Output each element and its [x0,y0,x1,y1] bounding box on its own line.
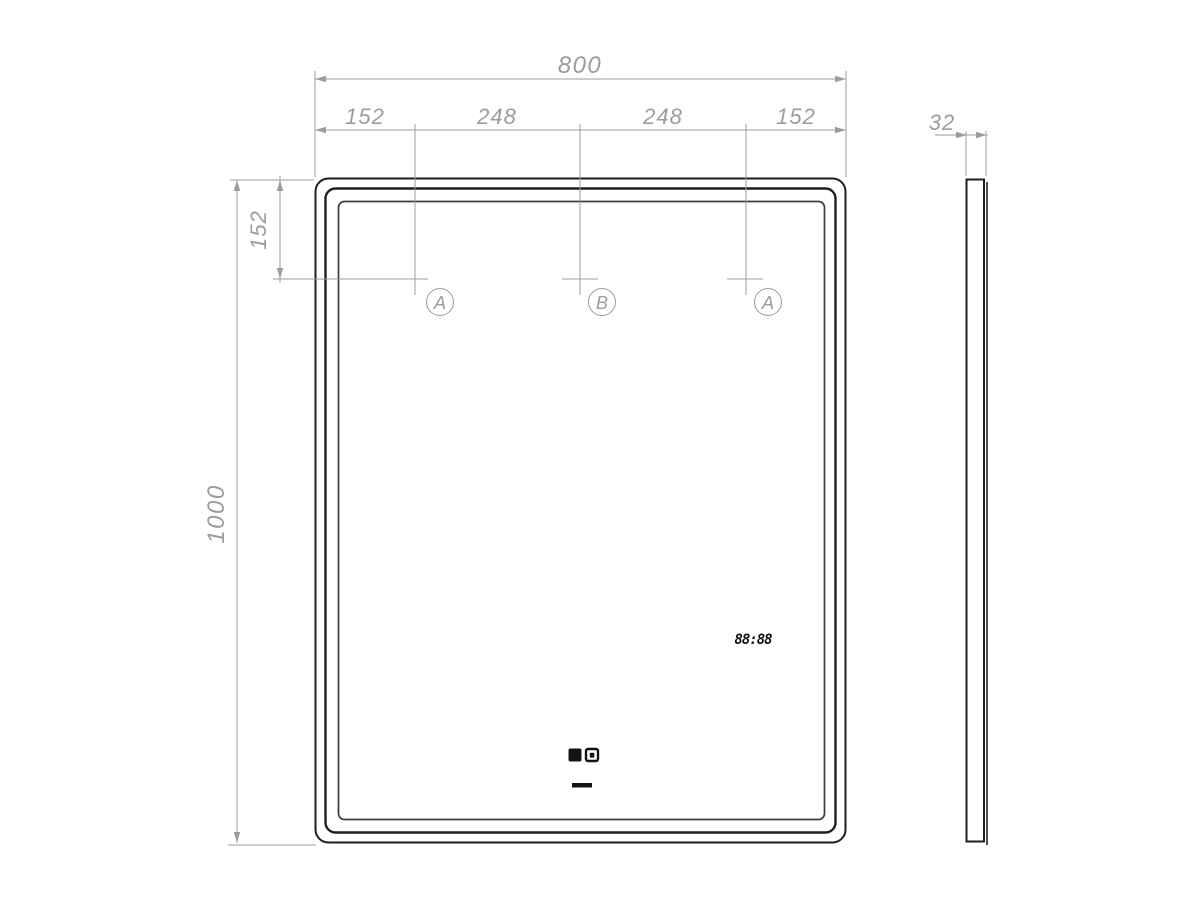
touch-sensor-icon [569,749,582,762]
mount-marker-label-center: B [596,293,608,313]
arrowhead-up [234,180,240,191]
arrowhead-down [234,832,240,843]
dim-thickness: 32 [929,110,988,176]
arrowhead-right [976,132,987,138]
arrowhead-up [277,180,283,191]
arrowhead-down [277,268,283,279]
arrowhead-left [956,132,967,138]
technical-drawing-canvas: 800 152 248 248 152 152 1000 [0,0,1200,900]
dim-label-segment-3: 248 [642,104,683,129]
mirror-dimension-drawing: 800 152 248 248 152 152 1000 [0,0,1200,900]
mount-marker-label-left: A [433,293,446,313]
dim-overall-height: 1000 [203,180,316,845]
dim-label-overall-width: 800 [558,52,603,79]
mirror-backlight-zone [339,202,825,820]
dim-label-thickness: 32 [929,110,955,135]
dim-label-segment-1: 152 [345,104,385,129]
dim-label-mount-offset: 152 [246,210,271,250]
side-view [967,180,988,846]
arrowhead-right [835,127,846,133]
mount-marker-label-right: A [761,293,774,313]
touch-controls [569,749,599,788]
sensor-bar-mark [572,783,592,788]
side-profile-body [967,180,985,842]
dim-label-height: 1000 [203,484,230,543]
arrowhead-left [315,76,326,82]
dim-label-segment-2: 248 [476,104,517,129]
dim-label-segment-4: 152 [776,104,816,129]
dim-segments: 152 248 248 152 [315,104,846,295]
arrowhead-right [835,76,846,82]
clock-display: 88:88 [734,632,772,648]
mount-markers: A B A [427,289,782,316]
light-button-dot-icon [590,753,595,758]
arrowhead-left [315,127,326,133]
